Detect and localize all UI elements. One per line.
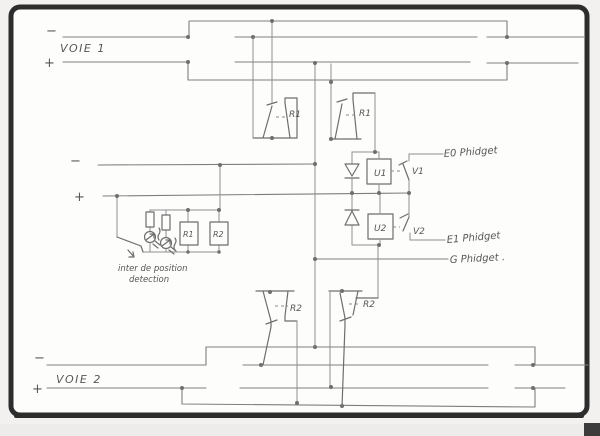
detector-label-line2: detection bbox=[129, 275, 169, 285]
relay-r1b-label: R1 bbox=[359, 109, 371, 119]
coil-r2-label: R2 bbox=[213, 230, 224, 239]
contact-v1-label: V1 bbox=[412, 167, 424, 177]
voie2-label: VOIE 2 bbox=[56, 373, 102, 386]
detector-label-line1: inter de position bbox=[118, 264, 188, 274]
relay-r1a-label: R1 bbox=[289, 110, 301, 120]
voie2-minus-label: − bbox=[34, 351, 45, 366]
relay-r2b-label: R2 bbox=[363, 300, 375, 310]
control-minus-label: − bbox=[70, 154, 81, 169]
relay-r2a-label: R2 bbox=[290, 304, 302, 314]
scanner-background-strip bbox=[0, 424, 600, 436]
coil-r1-label: R1 bbox=[183, 230, 194, 239]
scanned-schematic-page: − VOIE 1 + R1 R1 − + U1 V1 U2 V2 E0 Phid… bbox=[0, 0, 600, 436]
voie1-minus-label: − bbox=[46, 24, 57, 39]
voie1-plus-label: + bbox=[44, 56, 55, 71]
scan-edge-mark bbox=[584, 423, 600, 436]
control-plus-label: + bbox=[74, 190, 85, 205]
opto-u1-label: U1 bbox=[374, 169, 386, 179]
paper-sheet bbox=[11, 7, 587, 415]
opto-u2-label: U2 bbox=[374, 224, 387, 234]
schematic-drawing: − VOIE 1 + R1 R1 − + U1 V1 U2 V2 E0 Phid… bbox=[0, 0, 600, 436]
voie2-plus-label: + bbox=[32, 382, 43, 397]
voie1-label: VOIE 1 bbox=[60, 42, 106, 55]
contact-v2-label: V2 bbox=[413, 227, 425, 237]
